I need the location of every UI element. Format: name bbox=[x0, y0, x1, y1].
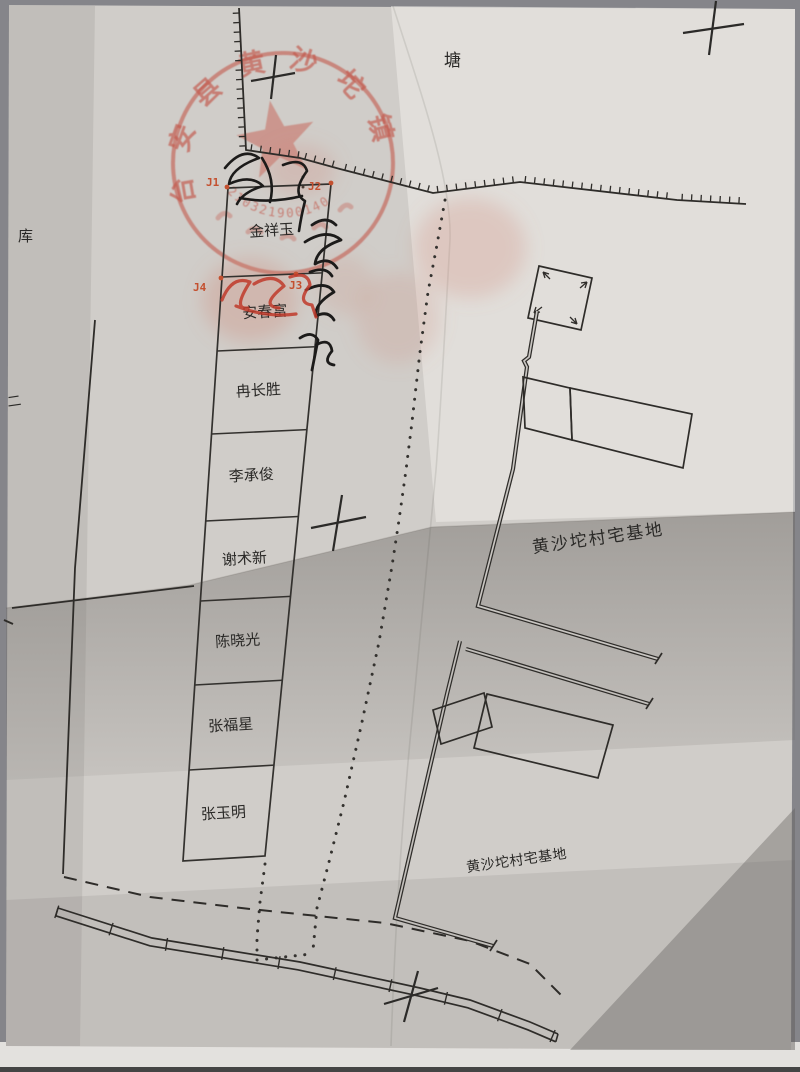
corner-label-j4: J4 bbox=[193, 281, 207, 294]
parcel-owner-label: 李承俊 bbox=[228, 466, 274, 486]
site-plan-canvas: 台安县黄沙坨镇 210321900140 金祥玉安春富冉长胜李承俊谢术新陈晓光张… bbox=[0, 0, 800, 1067]
label-two: 二 bbox=[6, 394, 22, 411]
parcel-owner-label: 张福星 bbox=[208, 716, 254, 736]
parcel-owner-label: 谢术新 bbox=[221, 549, 267, 569]
corner-label-j2: J2 bbox=[308, 180, 321, 193]
parcel-owner-label: 金祥玉 bbox=[249, 221, 295, 241]
photographed-site-plan: 台安县黄沙坨镇 210321900140 金祥玉安春富冉长胜李承俊谢术新陈晓光张… bbox=[0, 0, 800, 1067]
corner-label-j1: J1 bbox=[206, 176, 220, 189]
label-pond: 塘 bbox=[444, 51, 461, 70]
parcel-owner-label: 张玉明 bbox=[200, 804, 246, 824]
label-reservoir: 库 bbox=[18, 228, 33, 245]
parcel-owner-label: 冉长胜 bbox=[235, 381, 281, 401]
corner-label-j3: J3 bbox=[289, 279, 302, 292]
